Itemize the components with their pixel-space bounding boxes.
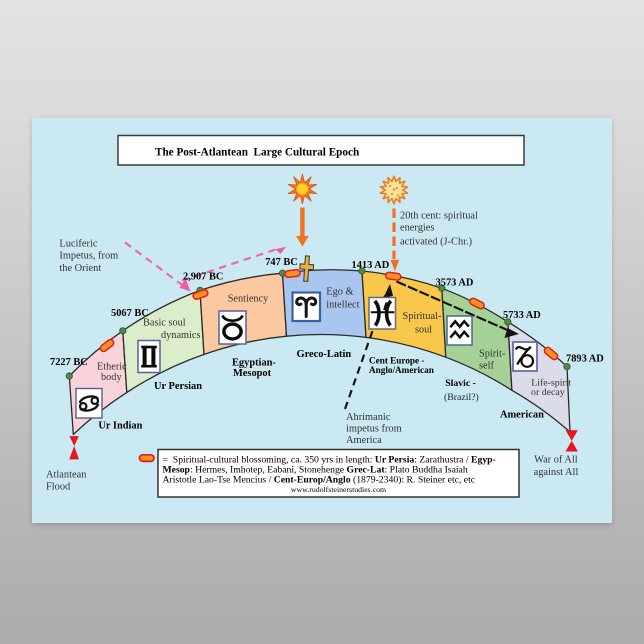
svg-text:Luciferic: Luciferic [59,239,97,250]
svg-text:Greco-Latin: Greco-Latin [297,349,352,360]
svg-text:20th cent: spiritual: 20th cent: spiritual [400,211,478,222]
svg-text:Spiritual-: Spiritual- [403,311,442,322]
svg-text:7227 BC: 7227 BC [50,357,88,368]
svg-text:Mesopot: Mesopot [233,368,272,379]
svg-text:soul: soul [415,325,432,336]
svg-text:or decay: or decay [531,387,565,398]
svg-text:Slavic -: Slavic - [445,378,476,389]
svg-text:Ahrimanic: Ahrimanic [346,412,391,423]
svg-text:War of All: War of All [534,455,578,466]
svg-text:747 BC: 747 BC [265,257,298,268]
svg-text:activated (J-Chr.): activated (J-Chr.) [400,237,472,248]
svg-text:intellect: intellect [326,300,359,311]
svg-text:Spirit-: Spirit- [479,349,506,360]
svg-text:the Orient: the Orient [59,263,101,274]
svg-text:1413 AD: 1413 AD [352,260,390,271]
svg-text:5733 AD: 5733 AD [503,310,541,321]
svg-text:(Brazil?): (Brazil?) [444,392,479,403]
svg-text:energies: energies [400,223,434,234]
svg-text:www.rudolfsteinerstudies.com: www.rudolfsteinerstudies.com [291,485,386,494]
svg-text:dynamics: dynamics [161,330,200,341]
svg-text:America: America [346,435,382,446]
svg-text:The Post-Atlantean Large Cult: The Post-Atlantean Large Cultural Epoch [155,147,360,159]
svg-text:2,907 BC: 2,907 BC [183,272,223,283]
svg-text:Ur Persian: Ur Persian [154,381,202,392]
svg-text:Sentiency: Sentiency [228,294,269,305]
svg-text:Flood: Flood [46,482,71,493]
svg-text:impetus from: impetus from [346,424,402,435]
svg-text:self: self [479,361,494,372]
svg-text:Atlantean: Atlantean [46,470,87,481]
svg-text:body: body [101,372,122,383]
svg-text:Ur Indian: Ur Indian [98,421,142,432]
svg-text:7893 AD: 7893 AD [566,354,604,365]
svg-text:Cent Europe -: Cent Europe - [369,356,424,366]
svg-text:3573 AD: 3573 AD [436,278,474,289]
svg-text:Basic soul: Basic soul [143,318,186,329]
svg-text:Etheric: Etheric [97,362,127,373]
svg-text:Impetus, from: Impetus, from [59,251,118,262]
svg-text:Anglo/American: Anglo/American [369,365,434,375]
svg-text:American: American [500,410,544,421]
svg-text:Ego &: Ego & [326,287,353,298]
svg-text:against All: against All [534,467,579,478]
